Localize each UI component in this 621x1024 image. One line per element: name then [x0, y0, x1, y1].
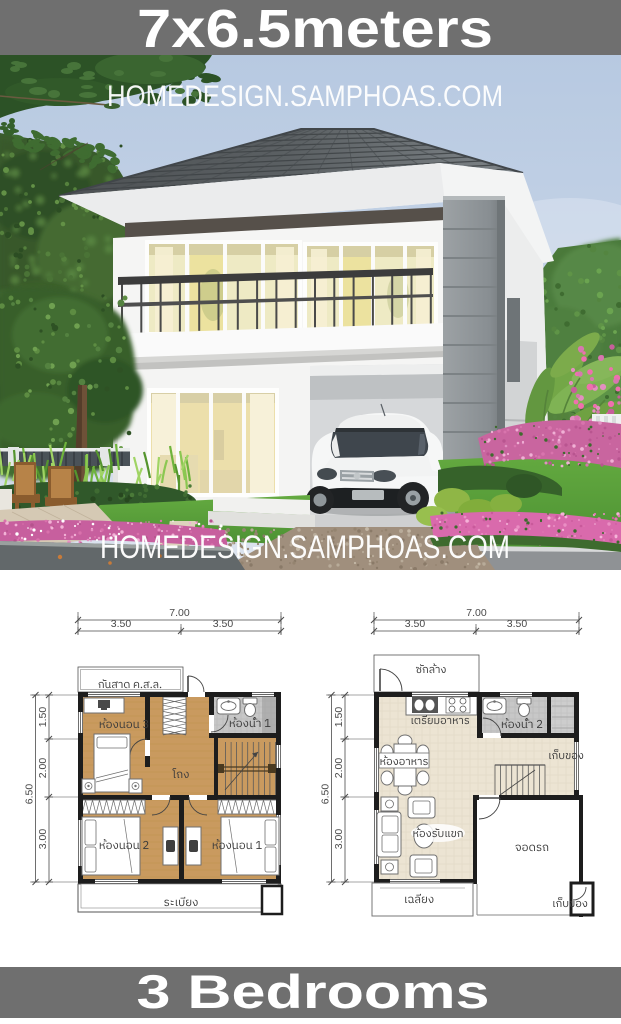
- svg-text:2.00: 2.00: [333, 758, 345, 779]
- svg-text:3.50: 3.50: [405, 618, 426, 630]
- svg-text:2.00: 2.00: [37, 758, 49, 779]
- svg-text:HOMEDESIGN.SAMPHOAS.COM: HOMEDESIGN.SAMPHOAS.COM: [107, 80, 503, 113]
- svg-text:3.50: 3.50: [111, 618, 132, 630]
- svg-text:3.00: 3.00: [37, 829, 49, 850]
- svg-text:7.00: 7.00: [169, 607, 190, 619]
- svg-text:1.50: 1.50: [333, 707, 345, 728]
- svg-text:6.50: 6.50: [24, 784, 36, 805]
- svg-text:3.50: 3.50: [213, 618, 234, 630]
- svg-text:7x6.5meters: 7x6.5meters: [137, 0, 493, 55]
- svg-text:7.00: 7.00: [466, 607, 487, 619]
- svg-text:3.50: 3.50: [507, 618, 528, 630]
- svg-text:HOMEDESIGN.SAMPHOAS.COM: HOMEDESIGN.SAMPHOAS.COM: [100, 529, 510, 565]
- svg-text:3 Bedrooms: 3 Bedrooms: [137, 967, 490, 1018]
- svg-text:1.50: 1.50: [37, 707, 49, 728]
- svg-text:3.00: 3.00: [333, 829, 345, 850]
- svg-text:6.50: 6.50: [320, 784, 332, 805]
